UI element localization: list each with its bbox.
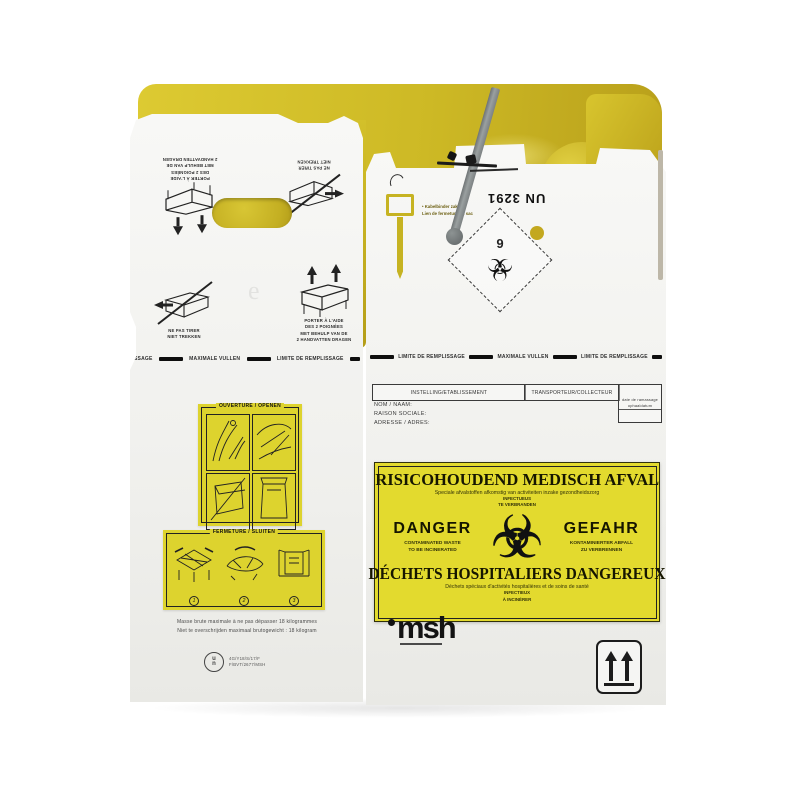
opening-step-4 bbox=[252, 473, 296, 530]
diamond-content: ☣ 6 bbox=[448, 208, 552, 312]
step-number: 3 bbox=[289, 596, 299, 606]
opening-sketch-icon bbox=[253, 415, 295, 465]
box-left-panel: PORTER À L'AIDE DES 2 POIGNÉES MET BEHUL… bbox=[130, 112, 363, 702]
danger-subtext: CONTAMINATED WASTE TO BE INCINERATED bbox=[404, 540, 461, 554]
weight-note-nl: Niet te overschrijden maximaal brutogewi… bbox=[136, 627, 358, 636]
handle-cutout bbox=[212, 198, 292, 228]
step-number: 1 bbox=[189, 596, 199, 606]
fill-limit-dash bbox=[652, 355, 662, 359]
weight-note-fr: Masse brute maximale à ne pas dépasser 1… bbox=[136, 618, 358, 627]
brand-logo-block: msh bbox=[388, 616, 455, 645]
un-number-block: UN 3291 bbox=[456, 190, 576, 208]
logo-text: msh bbox=[397, 616, 455, 641]
hazard-label-frame: RISICOHOUDEND MEDISCH AFVAL Speciale afv… bbox=[378, 466, 657, 619]
gefahr-sub-line: ZU VERBRENNEN bbox=[570, 547, 633, 554]
diagram-caption: NE PAS TIRER NIET TREKKEN bbox=[297, 158, 330, 171]
gefahr-block: GEFAHR KONTAMINIERTER ABFALL ZU VERBRENN… bbox=[554, 520, 650, 554]
logo-dot bbox=[388, 619, 395, 626]
gefahr-word: GEFAHR bbox=[564, 520, 640, 538]
un-number-text: UN 3291 bbox=[487, 191, 545, 206]
closing-sketch-icon bbox=[171, 542, 217, 584]
closing-steps-row: 1 2 3 bbox=[171, 542, 317, 607]
fill-limit-text: LIMITE DE REMPLISSAGE bbox=[277, 356, 344, 362]
opening-step-1 bbox=[206, 414, 250, 471]
embossed-mark: e bbox=[248, 276, 260, 306]
closing-step-3: 3 bbox=[271, 542, 317, 607]
closing-step-1: 1 bbox=[171, 542, 217, 607]
un-certification-mark: u n 4G/Y18/S/17/F F/BVT/2677/MSH bbox=[204, 652, 265, 672]
box-side-edge bbox=[658, 150, 663, 280]
fill-limit-text: LIMITE DE REMPLISSAGE bbox=[581, 354, 648, 360]
caption-line: NIET TREKKEN bbox=[297, 158, 330, 164]
hazard-inf-line: INFECTUEUS bbox=[498, 496, 536, 503]
un-code-line: F/BVT/2677/MSH bbox=[229, 662, 265, 668]
closing-instructions-panel: FERMETURE / SLUITEN 1 2 bbox=[163, 530, 325, 610]
max-weight-note: Masse brute maximale à ne pas dépasser 1… bbox=[136, 618, 358, 635]
yellow-dot-mark bbox=[530, 226, 544, 240]
box-carry-icon bbox=[294, 262, 354, 318]
diagram-no-pull: NE PAS TIRER NIET TREKKEN bbox=[138, 278, 230, 341]
opening-panel-title: OUVERTURE / OPENEN bbox=[216, 403, 284, 409]
hazard-infectious-french: INFECTIEUX À INCINÉRER bbox=[503, 590, 532, 603]
diagram-caption: PORTER À L'AIDE DES 2 POIGNÉES MET BEHUL… bbox=[297, 318, 352, 343]
opening-step-2 bbox=[252, 414, 296, 471]
diagram-carry: PORTER À L'AIDE DES 2 POIGNÉES MET BEHUL… bbox=[282, 262, 366, 343]
fill-limit-dash bbox=[469, 355, 493, 359]
caption-line: NE PAS TIRER bbox=[297, 164, 330, 170]
caption-line: MET BEHULP VAN DE bbox=[163, 162, 218, 168]
fill-limit-dash bbox=[159, 357, 183, 361]
biohazard-icon: ☣ bbox=[491, 510, 543, 565]
fill-limit-line: LIMITE DE REMPLISSAGE MAXIMALE VULLEN LI… bbox=[370, 354, 662, 360]
opening-steps-grid bbox=[206, 414, 294, 518]
closing-panel-title: FERMETURE / SLUITEN bbox=[210, 529, 278, 535]
fill-limit-text: MAXIMALE VULLEN bbox=[497, 354, 548, 360]
box-no-pull-icon bbox=[152, 278, 216, 328]
opening-instructions-panel: OUVERTURE / OPENEN bbox=[198, 404, 302, 526]
gefahr-subtext: KONTAMINIERTER ABFALL ZU VERBRENNEN bbox=[570, 540, 633, 554]
caption-line: 2 HANDVATTEN DRAGEN bbox=[163, 156, 218, 162]
hazard-inf-line: À INCINÉRER bbox=[503, 597, 532, 604]
un-symbol-n: n bbox=[212, 662, 216, 667]
closing-sketch-icon bbox=[271, 542, 317, 584]
hazard-label: RISICOHOUDEND MEDISCH AFVAL Speciale afv… bbox=[374, 462, 660, 622]
fill-limit-dash bbox=[247, 357, 271, 361]
fill-limit-dash bbox=[350, 357, 360, 361]
form-field-name: NOM / NAAM: bbox=[374, 402, 412, 408]
fill-limit-dash bbox=[370, 355, 394, 359]
caption-line: DES 2 POIGNÉES bbox=[163, 169, 218, 175]
hazard-middle-row: DANGER CONTAMINATED WASTE TO BE INCINERA… bbox=[385, 510, 650, 565]
fill-limit-text: SSAGE bbox=[134, 356, 153, 362]
closing-step-2: 2 bbox=[221, 542, 267, 607]
un-packaging-symbol: u n bbox=[204, 652, 224, 672]
form-header-transporter: TRANSPORTEUR/COLLECTEUR bbox=[524, 384, 620, 401]
product-photo-medical-waste-box: PORTER À L'AIDE DES 2 POIGNÉES MET BEHUL… bbox=[0, 0, 800, 800]
danger-word: DANGER bbox=[393, 520, 471, 538]
opening-sketch-icon bbox=[207, 415, 249, 465]
danger-block: DANGER CONTAMINATED WASTE TO BE INCINERA… bbox=[385, 520, 481, 554]
opening-step-3 bbox=[206, 473, 250, 530]
opening-sketch-icon bbox=[207, 474, 249, 524]
hazard-class-diamond: ☣ 6 bbox=[448, 208, 552, 312]
printed-cable-tie-icon bbox=[380, 194, 420, 279]
form-field-company: RAISON SOCIALE: bbox=[374, 411, 427, 417]
this-way-up-icon bbox=[602, 647, 636, 687]
box-carry-icon bbox=[160, 181, 220, 237]
hazard-title-dutch: RISICOHOUDEND MEDISCH AFVAL bbox=[375, 471, 659, 488]
form-header-date: date de ramassage ophaaldatum bbox=[618, 384, 662, 423]
fill-limit-text: LIMITE DE REMPLISSAGE bbox=[398, 354, 465, 360]
tie-head bbox=[386, 194, 414, 216]
danger-sub-line: CONTAMINATED WASTE bbox=[404, 540, 461, 547]
class-number: 6 bbox=[496, 237, 503, 252]
form-date-line: ophaaldatum bbox=[619, 404, 661, 410]
diagram-caption: PORTER À L'AIDE DES 2 POIGNÉES MET BEHUL… bbox=[163, 156, 218, 181]
form-field-address: ADRESSE / ADRES: bbox=[374, 420, 430, 426]
msh-logo: msh bbox=[388, 616, 455, 641]
fill-limit-line: SSAGE MAXIMALE VULLEN LIMITE DE REMPLISS… bbox=[134, 356, 360, 362]
cable-tie-head bbox=[446, 228, 463, 245]
tie-stem bbox=[397, 217, 403, 279]
form-header-establishment: INSTELLING/ETABLISSEMENT bbox=[372, 384, 526, 401]
closing-sketch-icon bbox=[221, 542, 267, 584]
hazard-inf-line: INFECTIEUX bbox=[503, 590, 532, 597]
caption-line: MET BEHULP VAN DE bbox=[297, 331, 352, 337]
fill-limit-dash bbox=[553, 355, 577, 359]
this-way-up-mark bbox=[596, 640, 642, 694]
danger-sub-line: TO BE INCINERATED bbox=[404, 547, 461, 554]
gefahr-sub-line: KONTAMINIERTER ABFALL bbox=[570, 540, 633, 547]
tie-curve-mark bbox=[388, 172, 406, 192]
step-number: 2 bbox=[239, 596, 249, 606]
opening-sketch-icon bbox=[253, 474, 295, 524]
biohazard-icon: ☣ bbox=[487, 254, 514, 284]
caption-line: 2 HANDVATTEN DRAGEN bbox=[297, 337, 352, 343]
caption-line: NIET TREKKEN bbox=[167, 334, 200, 340]
consignment-form: INSTELLING/ETABLISSEMENT TRANSPORTEUR/CO… bbox=[372, 384, 660, 430]
caption-line: PORTER À L'AIDE bbox=[163, 175, 218, 181]
diagram-caption: NE PAS TIRER NIET TREKKEN bbox=[167, 328, 200, 341]
box-right-panel: • Kabelbinder zak Lien de fermeture du s… bbox=[366, 138, 666, 705]
un-certification-codes: 4G/Y18/S/17/F F/BVT/2677/MSH bbox=[229, 656, 265, 669]
hazard-title-french: DÉCHETS HOSPITALIERS DANGEREUX bbox=[368, 566, 665, 583]
fill-limit-text: MAXIMALE VULLEN bbox=[189, 356, 240, 362]
